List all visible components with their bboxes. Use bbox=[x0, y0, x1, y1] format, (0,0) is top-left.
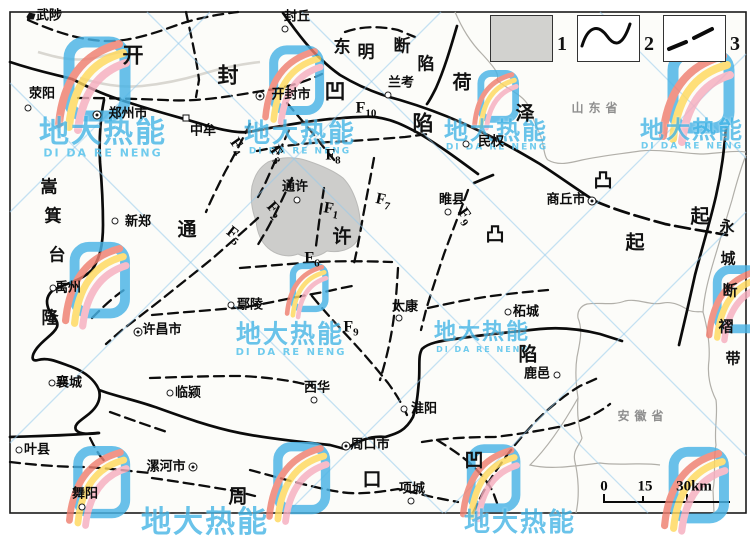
city-label: 开封市 bbox=[271, 89, 310, 102]
region-char: 封 bbox=[218, 65, 239, 86]
city-marker bbox=[189, 463, 198, 472]
city-marker bbox=[16, 447, 23, 454]
scale-label-30km: 30km bbox=[676, 480, 712, 495]
watermark-cn-text: 地大热能 bbox=[39, 118, 167, 148]
city-label: 叶县 bbox=[24, 444, 50, 457]
city-marker bbox=[294, 197, 301, 204]
region-char: 起 bbox=[690, 208, 709, 227]
watermark-en-text: DI DA RE NENG bbox=[436, 346, 530, 354]
city-label: 鄢陵 bbox=[237, 299, 263, 312]
legend-dashed-line-icon bbox=[664, 16, 723, 59]
legend-num-2: 2 bbox=[644, 34, 654, 54]
region-char: 嵩 bbox=[41, 180, 58, 197]
city-label: 中牟 bbox=[190, 125, 216, 138]
city-label: 鹿邑 bbox=[524, 368, 550, 381]
fault-label: F10 bbox=[356, 100, 377, 119]
city-label: 封丘 bbox=[284, 11, 310, 24]
region-char: 周 bbox=[228, 488, 247, 507]
city-marker bbox=[112, 218, 119, 225]
region-char: 断 bbox=[722, 284, 737, 299]
city-label: 临颍 bbox=[175, 387, 201, 400]
city-label: 淮阳 bbox=[411, 403, 437, 416]
region-char: 陷 bbox=[418, 57, 435, 74]
fault-label: F9 bbox=[343, 319, 358, 338]
city-label: 舞阳 bbox=[72, 488, 98, 501]
region-char: 通 bbox=[177, 221, 196, 240]
city-marker bbox=[49, 380, 56, 387]
legend-area-swatch bbox=[490, 15, 553, 62]
city-label: 漯河市 bbox=[146, 461, 185, 474]
region-char: 隆 bbox=[42, 311, 59, 328]
region-char: 凹 bbox=[325, 81, 346, 102]
city-marker bbox=[385, 92, 392, 99]
watermark-cn-text: 地大热能 bbox=[640, 118, 744, 142]
region-char: 永 bbox=[719, 220, 734, 235]
watermark-en-text: DI DA RE NENG bbox=[641, 143, 743, 152]
legend-solid-line-icon bbox=[578, 16, 637, 59]
city-label: 许昌市 bbox=[142, 324, 181, 337]
city-marker bbox=[256, 92, 265, 101]
region-char: 陷 bbox=[413, 113, 434, 134]
watermark-cn-text: 地大热能 bbox=[434, 322, 530, 344]
region-char: 城 bbox=[720, 252, 735, 267]
city-marker bbox=[311, 397, 318, 404]
city-marker bbox=[183, 115, 190, 122]
region-char: 凸 bbox=[593, 172, 612, 191]
scale-label-15: 15 bbox=[638, 480, 653, 495]
province-label: 山东省 bbox=[571, 102, 622, 114]
city-marker bbox=[93, 111, 102, 120]
watermark-cn-text: 地大热能 bbox=[464, 510, 576, 536]
dida-reneng-logo-icon bbox=[268, 440, 333, 518]
city-marker bbox=[396, 315, 403, 322]
region-char: 许 bbox=[332, 228, 351, 247]
fault-label: F6 bbox=[304, 250, 319, 269]
fault-label: F1 bbox=[322, 200, 340, 222]
region-char: 台 bbox=[49, 248, 66, 265]
city-label: 太康 bbox=[392, 301, 418, 314]
city-marker bbox=[342, 442, 351, 451]
city-label: 新郑 bbox=[125, 216, 151, 229]
region-char: 凸 bbox=[485, 226, 504, 245]
watermark-en-text: DI DA RE NENG bbox=[236, 348, 347, 358]
city-label: 睢县 bbox=[439, 194, 465, 207]
region-char: 箕 bbox=[45, 209, 62, 226]
legend-num-3: 3 bbox=[730, 34, 740, 54]
province-label: 安徽省 bbox=[617, 410, 668, 422]
city-marker bbox=[588, 197, 597, 206]
city-label: 荥阳 bbox=[29, 88, 55, 101]
city-label: 通许 bbox=[282, 181, 308, 194]
city-marker bbox=[505, 309, 512, 316]
fault-label: F8 bbox=[325, 147, 340, 166]
city-marker bbox=[408, 498, 415, 505]
region-char: 带 bbox=[725, 352, 740, 367]
city-label: 项城 bbox=[399, 483, 425, 496]
city-marker bbox=[134, 328, 143, 337]
city-marker bbox=[554, 372, 561, 379]
watermark-cn-text: 地大热能 bbox=[236, 322, 344, 347]
legend-num-1: 1 bbox=[557, 34, 567, 54]
watermark-en-text: DI DA RE NENG bbox=[43, 148, 162, 159]
dida-reneng-logo-icon bbox=[264, 43, 326, 118]
watermark-cn-text: 地大热能 bbox=[141, 508, 269, 538]
region-char: 断 bbox=[394, 39, 411, 56]
city-label: 民权 bbox=[478, 136, 504, 149]
city-marker bbox=[401, 406, 408, 413]
scale-label-0: 0 bbox=[600, 480, 608, 495]
region-char: 褶 bbox=[718, 320, 733, 335]
city-label: 武陟 bbox=[36, 10, 62, 23]
city-label: 柘城 bbox=[513, 306, 539, 319]
city-marker bbox=[463, 141, 470, 148]
city-marker bbox=[445, 209, 452, 216]
city-marker bbox=[282, 26, 289, 33]
region-char: 泽 bbox=[515, 105, 534, 124]
dida-reneng-logo-icon bbox=[68, 444, 133, 522]
city-label: 兰考 bbox=[388, 77, 414, 90]
watermark-cn-text: 地大热能 bbox=[244, 121, 356, 147]
region-char: 开 bbox=[123, 45, 144, 66]
region-char: 凹 bbox=[464, 452, 483, 471]
region-char: 口 bbox=[362, 471, 381, 490]
city-label: 周口市 bbox=[350, 439, 389, 452]
city-marker bbox=[167, 390, 174, 397]
legend-solid-line-swatch bbox=[577, 15, 640, 62]
city-label: 商丘市 bbox=[546, 194, 585, 207]
region-char: 陷 bbox=[518, 346, 537, 365]
city-label: 郑州市 bbox=[108, 108, 147, 121]
city-marker bbox=[25, 105, 32, 112]
region-char: 东 bbox=[334, 40, 351, 57]
region-char: 荷 bbox=[452, 74, 471, 93]
legend-dashed-line-swatch bbox=[663, 15, 726, 62]
region-char: 明 bbox=[358, 45, 375, 62]
city-label: 禹州 bbox=[55, 282, 81, 295]
city-marker bbox=[228, 302, 235, 309]
city-label: 襄城 bbox=[56, 377, 82, 390]
geological-map: 1 2 3 0 15 30km bbox=[0, 0, 750, 526]
city-marker bbox=[79, 504, 86, 511]
city-label: 西华 bbox=[304, 382, 330, 395]
region-char: 起 bbox=[625, 234, 644, 253]
